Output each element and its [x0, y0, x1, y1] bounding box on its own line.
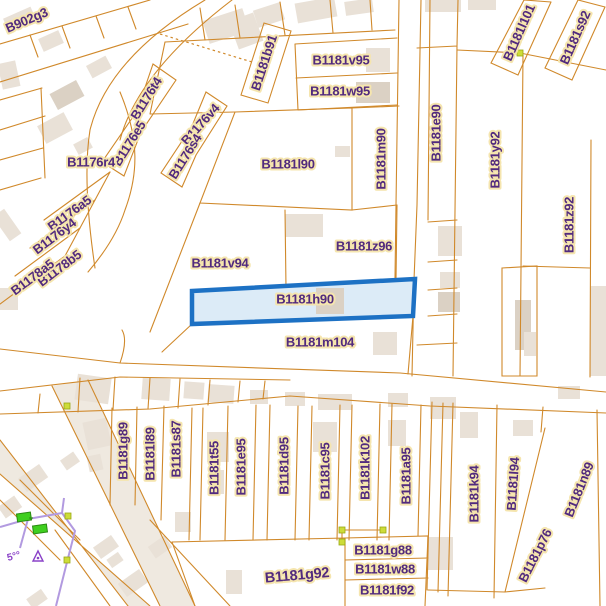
parcel-label: B1181l89 [142, 427, 157, 480]
parcel-label: B1181z92 [561, 197, 576, 253]
cadastral-map: 5°° B902g3B1176t4B1176v4B1176e5B1176s4B1… [0, 0, 606, 606]
parcel-label: B1181t55 [206, 441, 221, 495]
poi-marker-green [17, 512, 48, 534]
parcel-label: B1181k94 [466, 464, 481, 522]
parcel-label: B1181n89 [561, 460, 597, 519]
parcel-label: B1181k102 [357, 436, 372, 500]
road-fills [0, 380, 195, 606]
parcel-label: B1181w95 [310, 83, 370, 98]
parcel-label: B1181a95 [398, 447, 413, 504]
parcel-label: B1181e95 [233, 438, 248, 495]
parcel-label: B1181v95 [313, 52, 370, 67]
parcel-label: B1181p76 [515, 526, 555, 584]
parcel-label: B1181z96 [336, 238, 392, 253]
highlighted-parcel-label: B1181h90 [276, 291, 334, 306]
parcel-label: B1181g92 [264, 565, 330, 587]
map-canvas[interactable]: 5°° B902g3B1176t4B1176v4B1176e5B1176s4B1… [0, 0, 606, 606]
parcel-label: B1181g89 [115, 422, 130, 480]
parcel-label: B1181w88 [355, 561, 415, 576]
parcel-label: B1176r4 [67, 154, 116, 169]
parcel-label: B1181l94 [504, 456, 523, 511]
parcel-label: B1181y92 [487, 131, 502, 188]
parcel-label: B1181s92 [557, 8, 594, 66]
survey-symbol: 5°° [6, 550, 43, 564]
parcel-label: B1181f92 [360, 582, 414, 597]
parcel-label: B1181g88 [354, 542, 412, 557]
parcel-label: B1181c95 [317, 442, 332, 499]
parcel-label: B1176t4 [127, 74, 165, 123]
parcel-label: B1181s87 [168, 420, 183, 477]
parcel-label: B1181d95 [276, 437, 291, 495]
parcel-label: B1181m90 [373, 128, 388, 189]
parcel-label: B1181m104 [286, 334, 355, 349]
parcel-label: B1181e90 [428, 104, 443, 161]
parcel-label: B1181v94 [192, 255, 250, 270]
parcel-label: B1181l90 [261, 156, 314, 171]
survey-corner-text: 5°° [6, 550, 22, 564]
parcel-labels-layer: B902g3B1176t4B1176v4B1176e5B1176s4B1176r… [3, 2, 597, 597]
